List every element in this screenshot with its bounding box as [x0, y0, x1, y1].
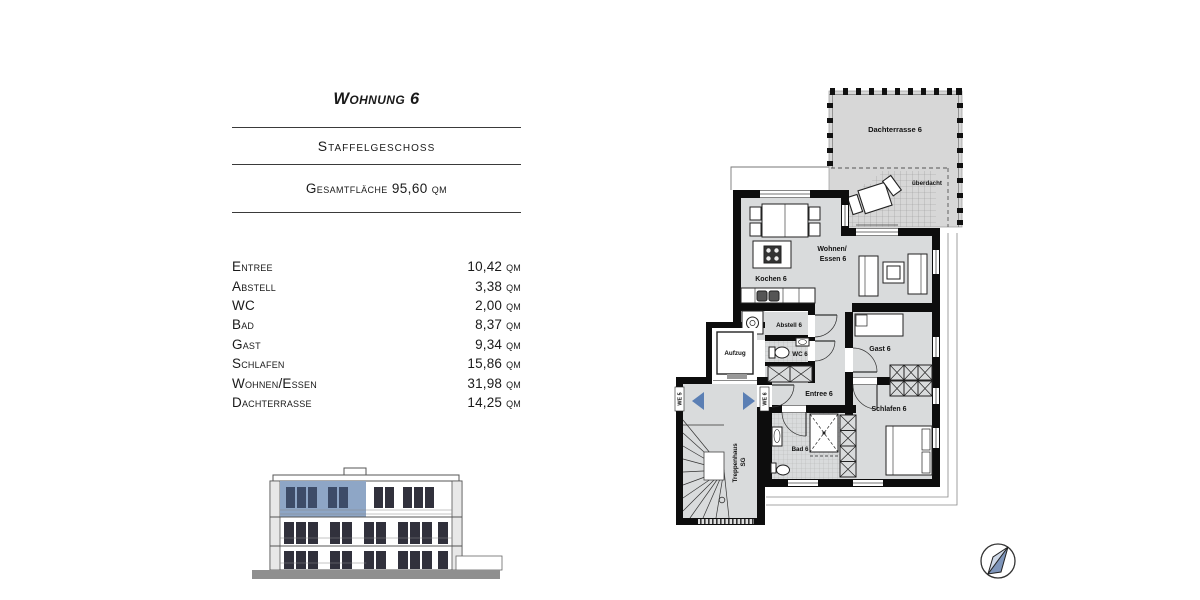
we5-label: WE 5: [678, 392, 684, 405]
we6-label: WE 6: [763, 392, 769, 405]
room-label: Schlafen: [232, 356, 285, 371]
room-area: 31,98 qm: [467, 376, 521, 391]
ueberdacht-label: überdacht: [912, 180, 942, 187]
north-arrow-icon: [981, 544, 1015, 578]
floor-subtitle: Staffelgeschoss: [232, 128, 521, 164]
table-row: Wohnen/Essen31,98 qm: [232, 373, 521, 392]
room-label: Dachterrasse: [232, 395, 312, 410]
table-row: Bad8,37 qm: [232, 315, 521, 334]
total-area: Gesamtfläche 95,60 qm: [232, 165, 521, 212]
brochure-page: Wohnung 6 Staffelgeschoss Gesamtfläche 9…: [0, 0, 1200, 600]
page-title: Wohnung 6: [232, 90, 521, 127]
schlafen-label: Schlafen 6: [871, 406, 906, 413]
floor-plan: Dachterrasse 6 überdacht: [600, 0, 1200, 600]
table-row: Dachterrasse14,25 qm: [232, 393, 521, 412]
table-row: Gast9,34 qm: [232, 335, 521, 354]
room-area: 14,25 qm: [467, 395, 521, 410]
elevator-label: Aufzug: [724, 350, 745, 357]
room-label: Entree: [232, 259, 273, 274]
gast-label: Gast 6: [869, 346, 891, 353]
terrace-label: Dachterrasse 6: [868, 125, 922, 134]
room-area: 3,38 qm: [475, 279, 521, 294]
table-row: Entree10,42 qm: [232, 257, 521, 276]
building-elevation: [240, 462, 510, 587]
shaft: [840, 415, 856, 477]
room-label: WC: [232, 298, 255, 313]
kochen-label: Kochen 6: [755, 276, 787, 283]
table-row: Abstell3,38 qm: [232, 276, 521, 295]
room-label: Bad: [232, 317, 254, 332]
apartment-info-panel: Wohnung 6 Staffelgeschoss Gesamtfläche 9…: [232, 90, 521, 412]
wc-label: WC 6: [792, 351, 808, 358]
table-row: Schlafen15,86 qm: [232, 354, 521, 373]
room-label: Abstell: [232, 279, 276, 294]
room-label: Wohnen/Essen: [232, 376, 317, 391]
elevator: Aufzug: [712, 328, 757, 381]
room-area: 10,42 qm: [467, 259, 521, 274]
room-area: 15,86 qm: [467, 356, 521, 371]
bad-label: Bad 6: [792, 446, 809, 453]
entry-mat: [698, 519, 754, 524]
room-label: Gast: [232, 337, 261, 352]
abstell-label: Abstell 6: [776, 322, 802, 329]
room-area: 2,00 qm: [475, 298, 521, 313]
room-area: 9,34 qm: [475, 337, 521, 352]
table-row: WC2,00 qm: [232, 296, 521, 315]
room-area: 8,37 qm: [475, 317, 521, 332]
entree-label: Entree 6: [805, 391, 833, 398]
